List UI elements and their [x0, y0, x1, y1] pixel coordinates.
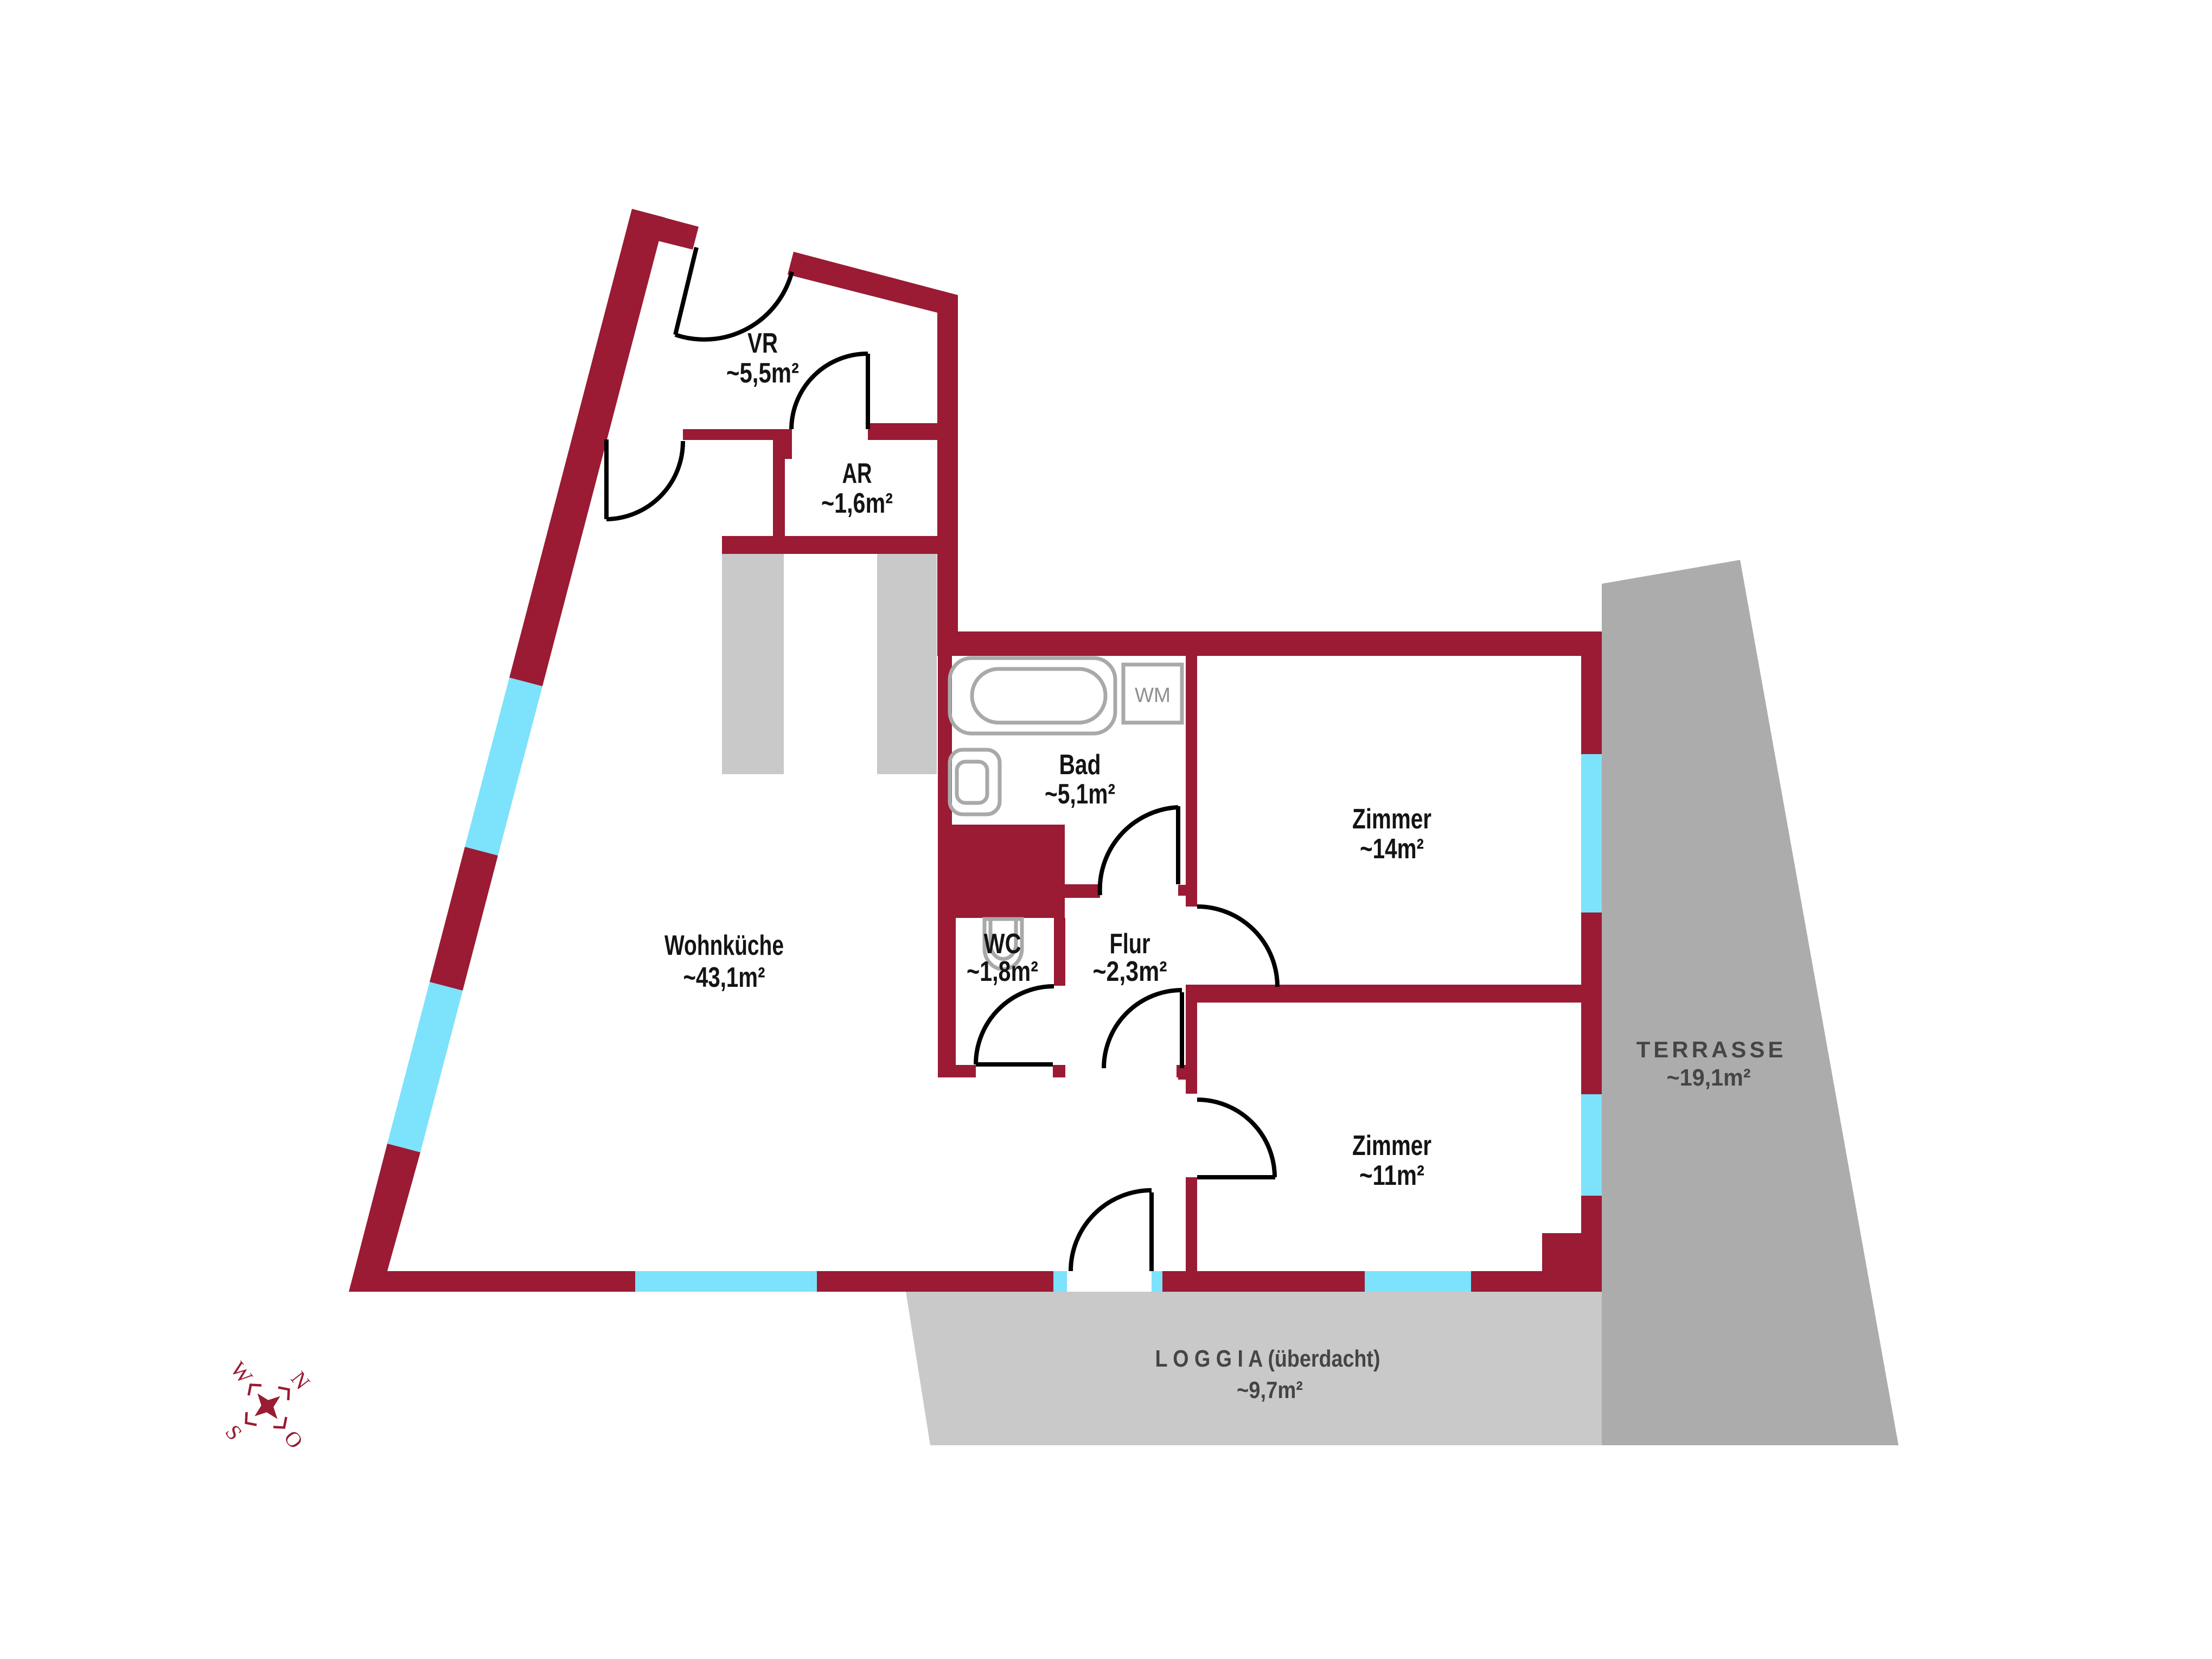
svg-text:~2,3m²: ~2,3m² [1093, 956, 1167, 987]
svg-text:TERRASSE: TERRASSE [1636, 1037, 1787, 1062]
svg-text:L O G G I A (überdacht): L O G G I A (überdacht) [1155, 1345, 1380, 1372]
svg-text:WM: WM [1135, 684, 1171, 707]
svg-text:Wohnküche: Wohnküche [664, 930, 784, 961]
svg-text:~19,1m²: ~19,1m² [1667, 1064, 1751, 1091]
svg-text:WC: WC [984, 928, 1021, 960]
svg-text:Zimmer: Zimmer [1352, 1130, 1431, 1162]
svg-text:VR: VR [747, 328, 778, 359]
svg-text:~11m²: ~11m² [1359, 1160, 1424, 1191]
svg-text:~5,5m²: ~5,5m² [726, 358, 799, 389]
svg-text:Zimmer: Zimmer [1352, 803, 1431, 835]
svg-text:~14m²: ~14m² [1360, 833, 1424, 865]
svg-text:~5,1m²: ~5,1m² [1045, 779, 1115, 810]
svg-text:Bad: Bad [1059, 749, 1101, 781]
svg-text:~1,6m²: ~1,6m² [821, 488, 893, 519]
svg-text:Flur: Flur [1110, 928, 1150, 960]
svg-text:~9,7m²: ~9,7m² [1237, 1377, 1303, 1403]
svg-text:AR: AR [842, 458, 872, 489]
svg-text:~43,1m²: ~43,1m² [683, 962, 765, 993]
svg-text:~1,8m²: ~1,8m² [967, 956, 1038, 987]
